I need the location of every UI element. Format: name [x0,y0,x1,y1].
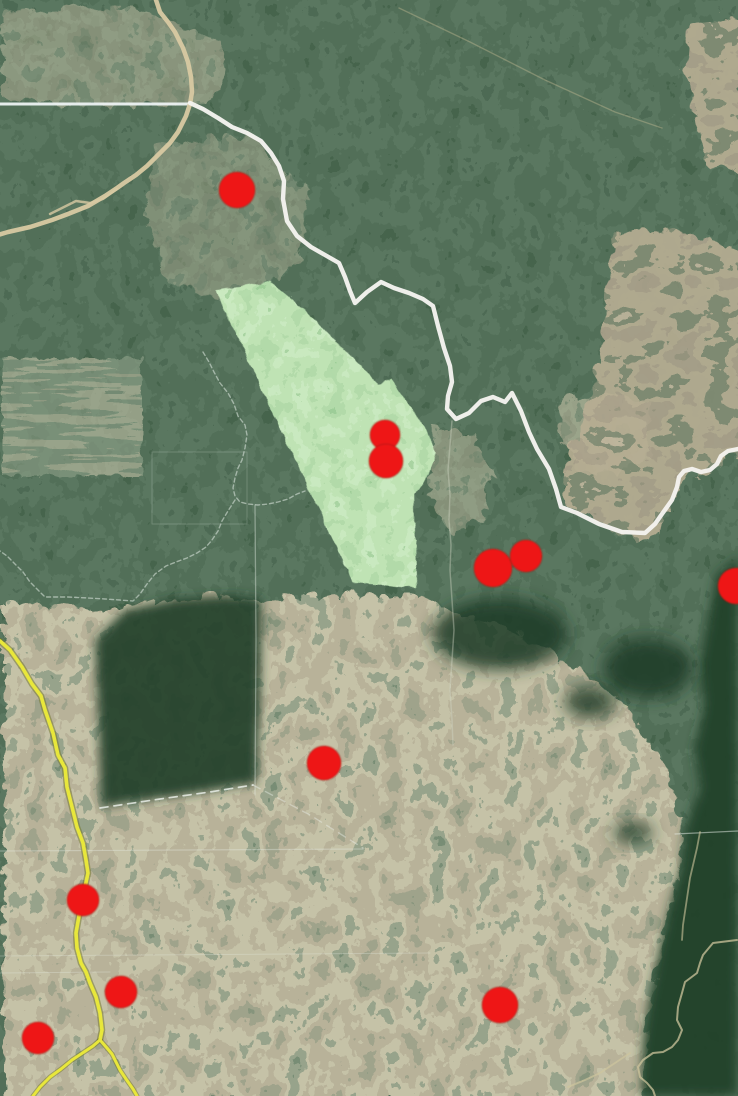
alert-marker-3[interactable] [474,549,512,587]
alert-marker-2b[interactable] [369,444,403,478]
alert-marker-4[interactable] [510,540,542,572]
forest-dark-blob [603,638,693,698]
forest-dark-blob [613,822,653,844]
alert-marker-7[interactable] [67,884,99,916]
alert-marker-6[interactable] [307,746,341,780]
forest-dark-patch [95,595,262,807]
alert-marker-1[interactable] [219,172,255,208]
map-viewport [0,0,738,1096]
alert-marker-9[interactable] [22,1022,54,1054]
deforestation-fishbone [0,356,140,474]
alert-marker-10[interactable] [482,987,518,1023]
alert-marker-8[interactable] [105,976,137,1008]
satellite-map[interactable] [0,0,738,1096]
forest-dark-blob [564,686,616,718]
